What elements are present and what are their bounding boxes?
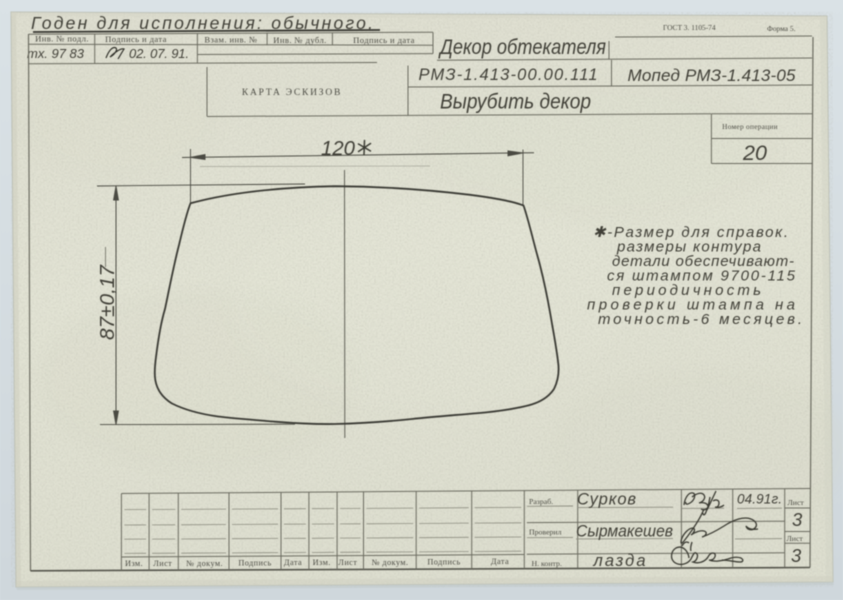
svg-text:Сырмакешев: Сырмакешев: [576, 523, 673, 541]
svg-text:лазда: лазда: [593, 552, 646, 570]
svg-text:Сурков: Сурков: [577, 491, 636, 509]
svg-text:87±0,17: 87±0,17: [96, 263, 119, 340]
svg-text:Мопед РМЗ-1.413-05: Мопед РМЗ-1.413-05: [628, 66, 797, 85]
svg-text:РМЗ-1.413-00.00.111: РМЗ-1.413-00.00.111: [419, 66, 598, 84]
svg-text:Дата: Дата: [491, 557, 509, 566]
svg-text:Лист: Лист: [338, 558, 357, 567]
svg-text:тх. 97 83: тх. 97 83: [27, 46, 85, 61]
svg-text:3: 3: [791, 545, 802, 566]
svg-text:№ докум.: № докум.: [186, 559, 223, 568]
svg-text:Вырубить декор: Вырубить декор: [440, 91, 591, 114]
svg-text:20: 20: [742, 141, 767, 165]
svg-text:02. 07. 91.: 02. 07. 91.: [129, 46, 189, 61]
svg-text:Н. контр.: Н. контр.: [532, 559, 562, 568]
svg-text:Номер операции: Номер операции: [722, 122, 778, 131]
svg-text:Подпись: Подпись: [238, 559, 271, 568]
svg-text:Взам. инв. №: Взам. инв. №: [204, 35, 257, 45]
svg-text:КАРТА ЭСКИЗОВ: КАРТА ЭСКИЗОВ: [242, 88, 342, 98]
svg-text:Изм.: Изм.: [125, 559, 143, 568]
svg-text:Проверил: Проверил: [529, 528, 562, 537]
svg-text:3: 3: [792, 509, 803, 530]
svg-text:Форма 5.: Форма 5.: [767, 24, 796, 33]
svg-text:Лист: Лист: [788, 498, 805, 507]
svg-text:Дата: Дата: [284, 558, 302, 567]
svg-text:Подпись: Подпись: [427, 558, 460, 567]
svg-text:Разраб.: Разраб.: [529, 497, 553, 506]
svg-text:Подпись и дата: Подпись и дата: [105, 34, 167, 44]
svg-text:№ докум.: № докум.: [372, 558, 409, 567]
svg-text:Лист: Лист: [787, 534, 804, 543]
svg-text:04.91г.: 04.91г.: [737, 492, 782, 507]
svg-text:Лист: Лист: [153, 559, 172, 568]
svg-text:Изм.: Изм.: [313, 558, 331, 567]
svg-text:120: 120: [321, 137, 356, 160]
svg-text:Декор обтекателя: Декор обтекателя: [438, 36, 606, 59]
svg-text:точность-6 месяцев.: точность-6 месяцев.: [598, 311, 802, 328]
svg-text:Подпись и дата: Подпись и дата: [353, 35, 415, 45]
svg-text:Инв. № подл.: Инв. № подл.: [35, 34, 89, 44]
svg-text:ГОСТ 3. 1105-74: ГОСТ 3. 1105-74: [663, 23, 716, 32]
svg-text:Инв. № дубл.: Инв. № дубл.: [273, 35, 326, 45]
